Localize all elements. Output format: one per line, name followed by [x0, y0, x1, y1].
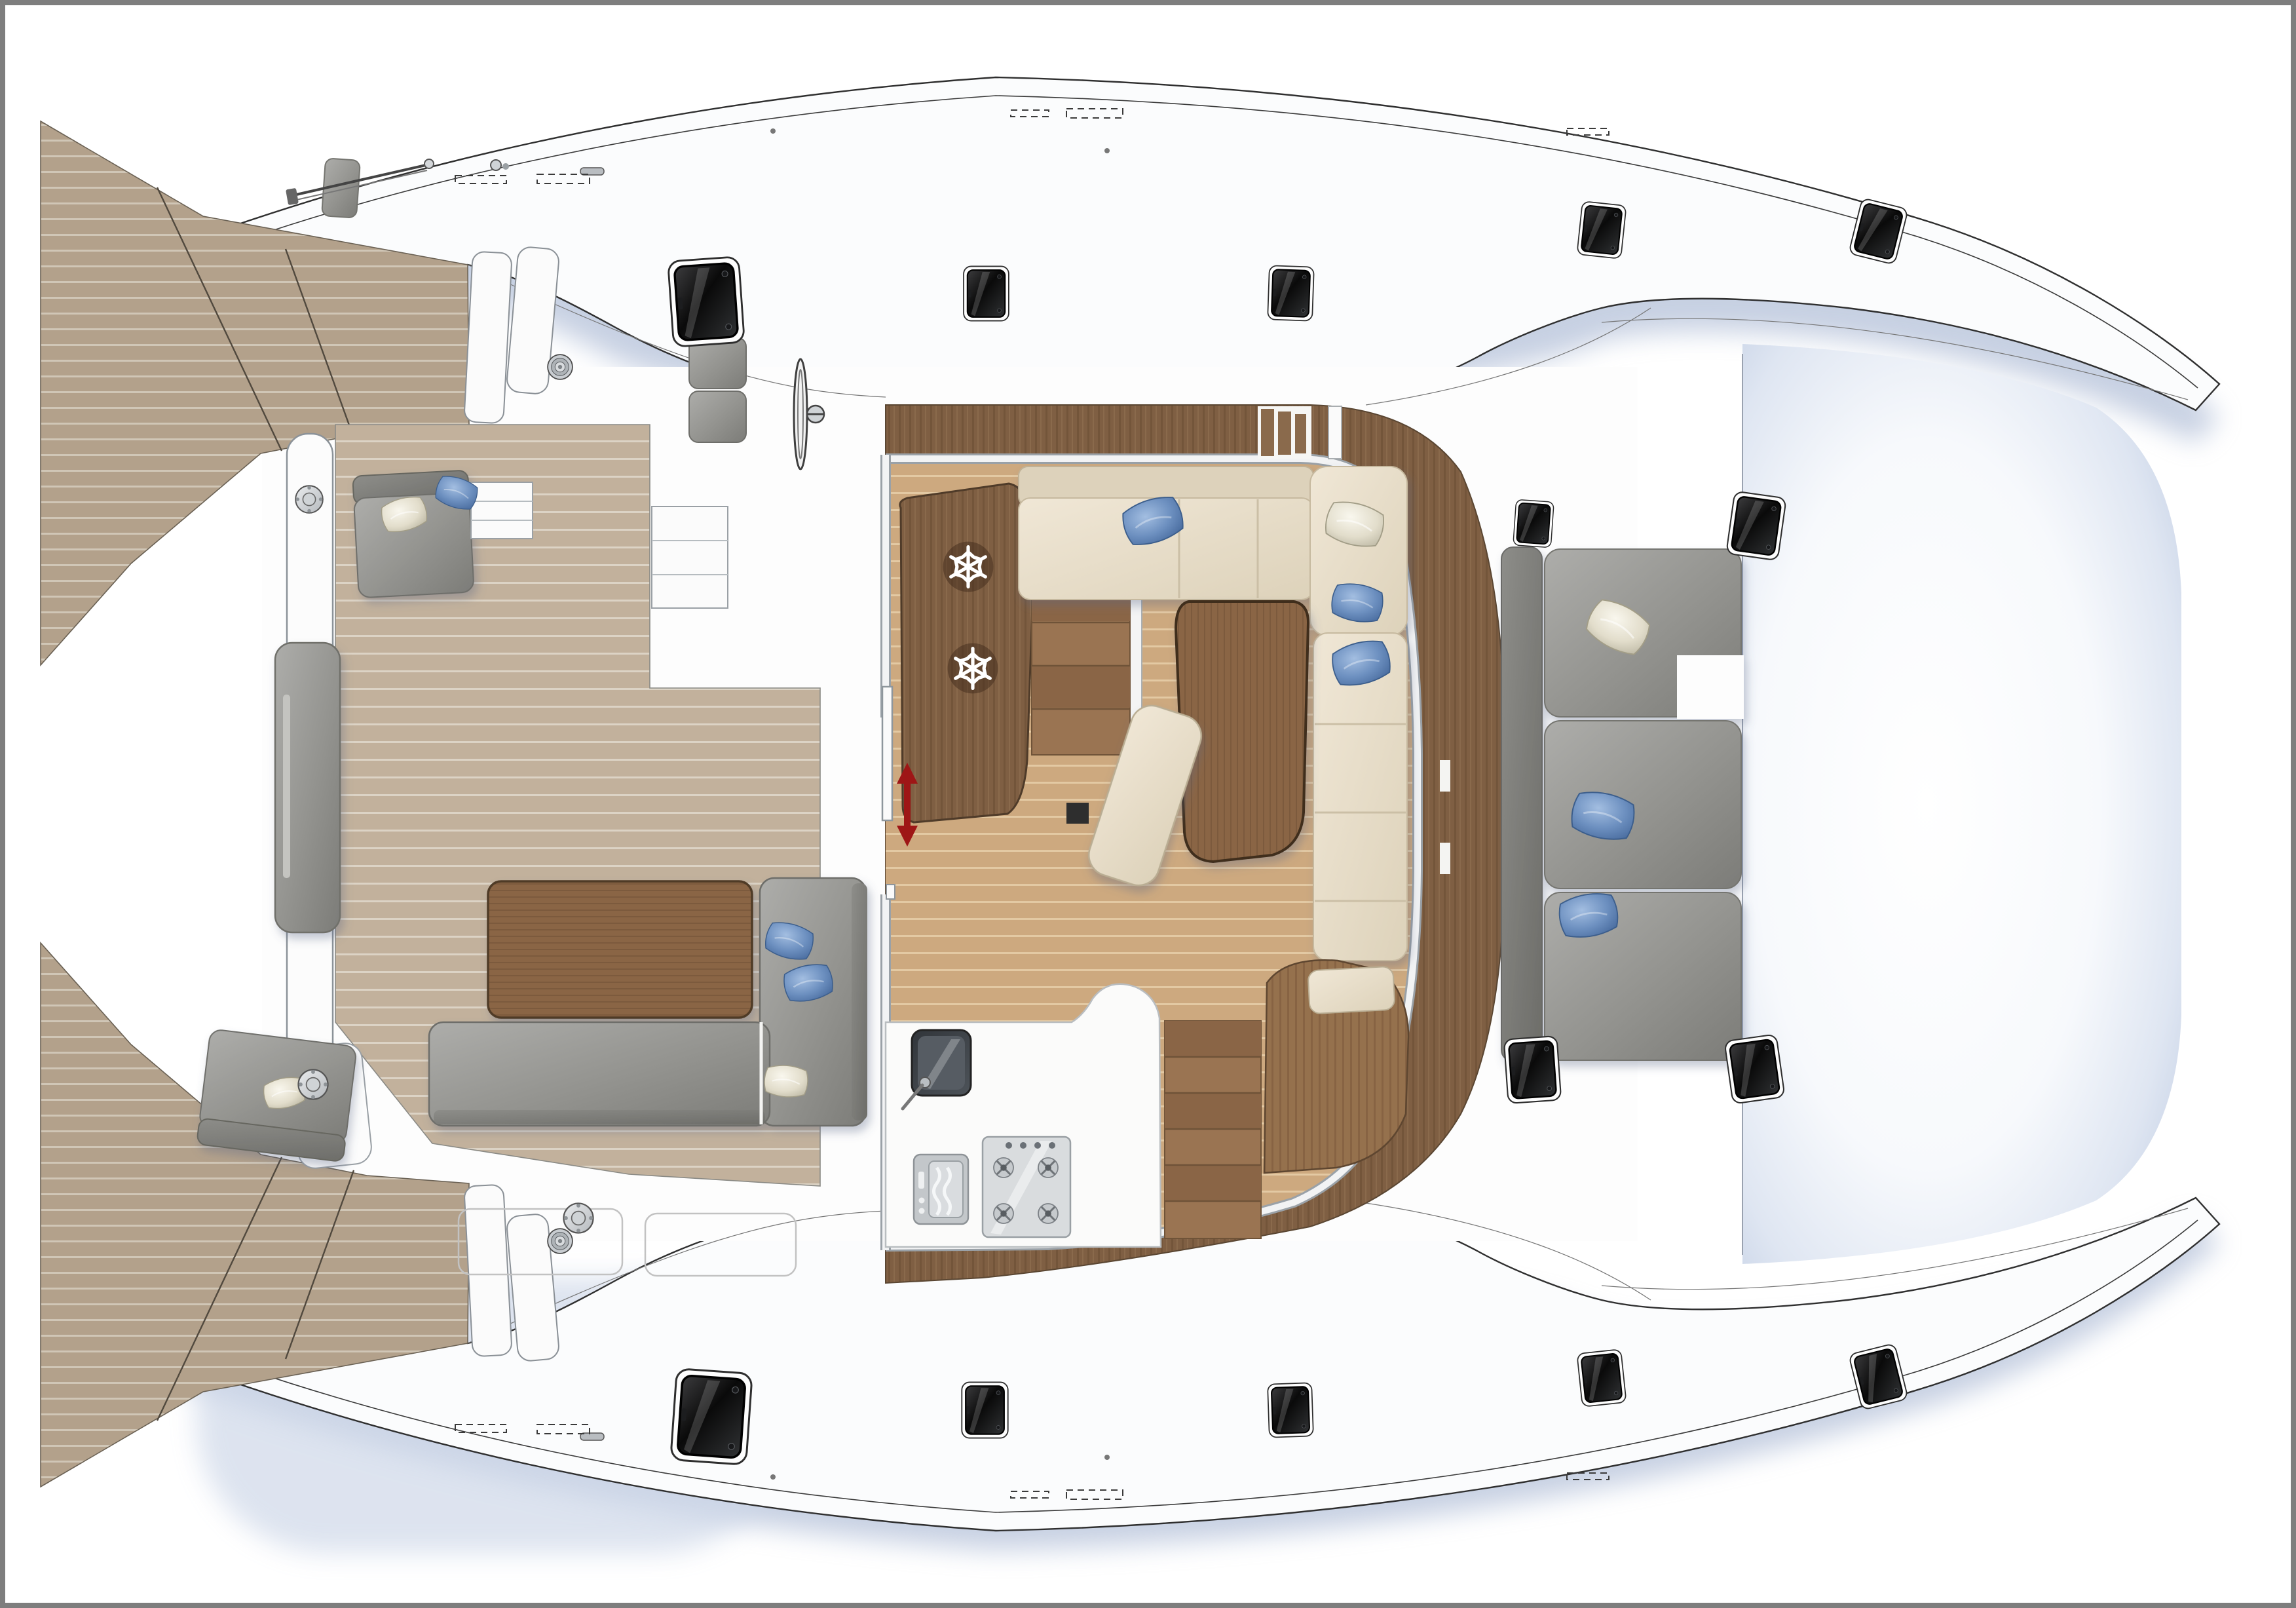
deck-hatch-window: [668, 257, 745, 347]
stove: [983, 1137, 1070, 1237]
helm-bench-cushion: [689, 391, 746, 442]
deck-hatch-window: [1724, 1034, 1784, 1103]
deck-hatch-window: [1577, 1349, 1626, 1407]
winch-icon: [548, 354, 573, 379]
trampoline: [1742, 344, 2181, 1264]
deck-hatch-window: [1513, 499, 1554, 547]
forward-seat-backrest: [1501, 547, 1542, 1062]
coachroof-mullion: [1440, 760, 1450, 792]
stove-knob: [1006, 1142, 1012, 1149]
stove-knob: [1049, 1142, 1055, 1149]
cushion-handle: [283, 695, 290, 878]
deck-plate-icon: [563, 1203, 593, 1233]
stove-burner-icon: [994, 1158, 1013, 1177]
deck-hatch-window: [1726, 491, 1786, 561]
deck-plate-icon: [298, 1069, 328, 1099]
oven-icon: [914, 1155, 968, 1224]
deck-hatch-window: [1268, 265, 1314, 320]
deck-hatch-window: [964, 266, 1009, 320]
helm-steps: [652, 507, 728, 608]
forward-seat-notch: [1677, 655, 1744, 719]
catamaran-floorplan-drawing: [0, 0, 2296, 1608]
white-pillow: [763, 1063, 809, 1098]
snowflake-icon: [943, 542, 994, 592]
deck-hatch-window: [1504, 1036, 1561, 1103]
deck-hatch-window: [962, 1382, 1007, 1438]
deck-hatch-window: [671, 1369, 753, 1465]
port-hull-corridor: [1258, 406, 1342, 459]
cockpit-table: [488, 881, 752, 1018]
side-deck-steps-port: [471, 482, 533, 539]
deck-hatch-window: [1577, 201, 1626, 259]
coachroof-mullion: [1440, 843, 1450, 874]
saloon: [882, 405, 1504, 1283]
corridor-door: [1328, 406, 1342, 459]
stove-burner-icon: [1038, 1204, 1058, 1223]
snowflake-icon: [948, 643, 998, 694]
stove-knob: [1034, 1142, 1041, 1149]
winch-icon: [548, 1229, 573, 1254]
stove-knob: [1020, 1142, 1026, 1149]
chaise-pad: [1308, 967, 1395, 1014]
deck-plan-canvas: [0, 0, 2296, 1608]
stove-burner-icon: [1038, 1158, 1058, 1177]
floor-mark-layer: [1066, 803, 1089, 824]
stairs-starboard-hull: [1165, 1021, 1261, 1238]
stove-burner-icon: [994, 1204, 1013, 1223]
floor-fitting-mark: [1066, 803, 1089, 824]
deck-plate-icon: [295, 486, 323, 513]
deck-hatch-window: [1268, 1383, 1313, 1437]
